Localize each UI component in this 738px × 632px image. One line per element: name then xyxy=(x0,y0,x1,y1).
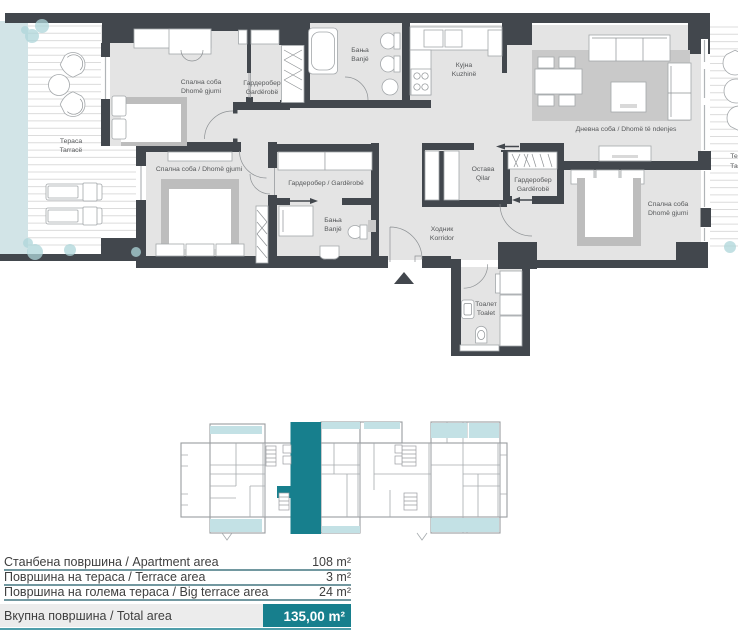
svg-text:135,00 m²: 135,00 m² xyxy=(283,609,345,624)
svg-text:Површина на тераса / Terrace a: Површина на тераса / Terrace area xyxy=(4,570,205,584)
svg-text:Гардеробер: Гардеробер xyxy=(514,176,552,184)
svg-text:Kuzhinë: Kuzhinë xyxy=(452,71,477,78)
svg-text:Кујна: Кујна xyxy=(456,62,473,69)
svg-text:Gardërobë: Gardërobë xyxy=(517,186,550,193)
svg-text:Спална соба / Dhomë gjumi: Спална соба / Dhomë gjumi xyxy=(156,165,243,173)
svg-text:Gardërobë: Gardërobë xyxy=(246,89,279,96)
svg-text:Toalet: Toalet xyxy=(477,310,495,317)
svg-text:Гардеробер / Gardërobë: Гардеробер / Gardërobë xyxy=(288,179,364,187)
svg-text:Тераса: Тераса xyxy=(60,138,83,145)
svg-text:Вкупна површина / Total area: Вкупна површина / Total area xyxy=(4,609,172,623)
svg-text:Гардеробер: Гардеробер xyxy=(243,79,281,87)
svg-text:Dhomë gjumi: Dhomë gjumi xyxy=(648,210,689,217)
svg-text:Остава: Остава xyxy=(472,166,495,173)
svg-text:Tarracë: Tarracë xyxy=(60,147,83,154)
svg-text:Станбена површина / Apartment: Станбена површина / Apartment area xyxy=(4,555,219,569)
svg-text:Спална соба: Спална соба xyxy=(181,78,222,86)
svg-text:Та: Та xyxy=(730,163,738,170)
svg-text:Дневна соба / Dhomë të ndenjes: Дневна соба / Dhomë të ndenjes xyxy=(576,125,677,133)
svg-text:Ходник: Ходник xyxy=(431,226,454,233)
svg-text:3 m²: 3 m² xyxy=(326,570,351,584)
svg-text:Qilar: Qilar xyxy=(476,175,491,182)
svg-text:Banjë: Banjë xyxy=(324,226,342,233)
svg-text:Korridor: Korridor xyxy=(430,235,455,242)
svg-text:Спална соба: Спална соба xyxy=(648,200,689,208)
svg-text:Бања: Бања xyxy=(351,47,369,54)
svg-text:Banjë: Banjë xyxy=(351,56,369,63)
svg-text:Површина на голема тераса / Bi: Површина на голема тераса / Big terrace … xyxy=(4,585,268,599)
svg-text:108 m²: 108 m² xyxy=(312,555,351,569)
svg-text:Те: Те xyxy=(730,153,738,160)
svg-text:Dhomë gjumi: Dhomë gjumi xyxy=(181,88,222,95)
svg-text:Бања: Бања xyxy=(324,217,342,224)
svg-text:Тоалет: Тоалет xyxy=(475,301,497,308)
svg-text:24 m²: 24 m² xyxy=(319,585,351,599)
